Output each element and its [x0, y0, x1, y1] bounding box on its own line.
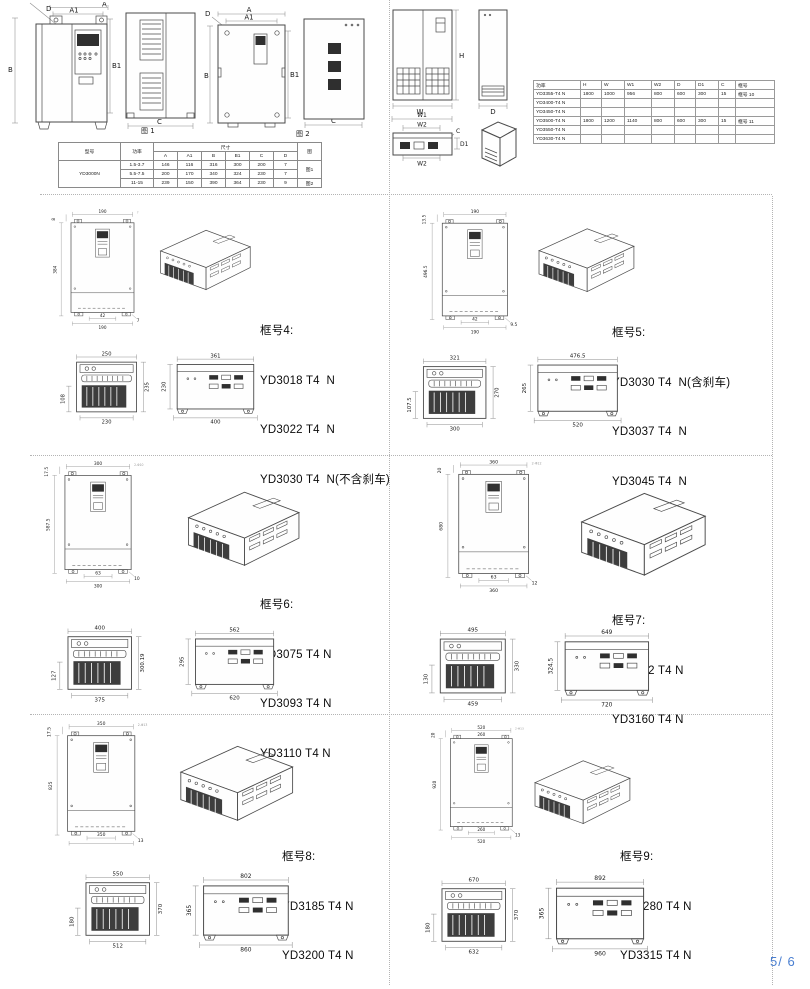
dim-label-a1: A1: [244, 14, 253, 22]
th: W1: [625, 81, 652, 90]
enclosure-body: [459, 470, 529, 577]
cabinet-iso-view: [482, 122, 516, 166]
dim-top: 476.5: [570, 354, 586, 360]
dim-right: 235: [145, 382, 151, 392]
cell: [719, 99, 736, 108]
frame6-bottom-view: 400 127 300.19 375: [46, 624, 148, 702]
frame5-bottom-view: 321 107.5 270 300: [402, 354, 502, 431]
cell: 239: [154, 179, 178, 188]
th: 功率: [534, 81, 581, 90]
rear-view-drawing: 476.5 265 520: [512, 352, 634, 428]
unit-body: [557, 888, 644, 944]
cell: 1200: [602, 117, 625, 126]
cell: [602, 126, 625, 135]
iso-box: [161, 230, 251, 289]
cell: [625, 135, 652, 144]
figure2-drawing: D A A1 B B1 C 图 2: [204, 2, 376, 138]
cell: [652, 108, 675, 117]
dim-width: 190: [99, 209, 107, 214]
cell: 11-15: [121, 179, 154, 188]
dim-bottom: 360: [489, 588, 498, 593]
th: D: [675, 81, 696, 90]
dim-hole: 7: [137, 318, 140, 323]
frame-title: 框号6:: [260, 597, 332, 614]
dim-height: 496.5: [423, 265, 429, 278]
th-model: 型号: [59, 143, 121, 161]
cell: [736, 108, 775, 117]
frame5-rear-view: 476.5 265 520: [512, 352, 634, 428]
iso-box: [181, 746, 293, 820]
dim-label-h: H: [459, 52, 464, 60]
manual-page: D A A1 B B1 C: [0, 0, 810, 989]
rear-view-drawing: 892 365 960: [528, 874, 662, 957]
frame8-iso-view: [170, 736, 300, 822]
cell: 1140: [625, 117, 652, 126]
frame9-section: 520 260 2-Φ13 20 920 260 520 13: [390, 716, 810, 989]
frame9-iso-view: [526, 752, 636, 825]
cell: 800: [652, 90, 675, 99]
dim-width: 360: [489, 460, 498, 466]
dim-label-c: C: [157, 118, 162, 126]
enclosure-body: [71, 219, 134, 316]
dim-left: 365: [538, 908, 545, 920]
cell: 170: [178, 170, 202, 179]
dim-left: 295: [180, 656, 186, 666]
cell: YD3355-T4 N: [534, 90, 581, 99]
cell: [625, 126, 652, 135]
th-c: C: [250, 152, 274, 161]
dim-top: 550: [113, 871, 124, 877]
cell: 600: [675, 117, 696, 126]
unit-body: [204, 886, 289, 940]
dim-note: 2-Φ10: [134, 463, 143, 467]
dim-bottom-inner: 42: [100, 313, 106, 318]
frame8-rear-view: 802 365 860: [176, 872, 306, 953]
frame8-section: 350 2-Φ13 17.5 825 350 13: [0, 716, 389, 989]
unit-body: [177, 364, 254, 413]
cell-fig2: 图2: [298, 179, 322, 188]
cell: [736, 126, 775, 135]
dim-note: 2-Φ13: [138, 723, 148, 727]
enclosure-body: [65, 472, 131, 574]
dim-bottom: 190: [99, 325, 107, 330]
dim-left: 107.5: [407, 397, 413, 412]
dim-label-w1: W1: [417, 112, 427, 119]
iso-box: [188, 492, 299, 565]
dim-width: 350: [97, 721, 106, 727]
cell: 150: [178, 179, 202, 188]
cell: 1800: [581, 117, 602, 126]
cell: [696, 126, 719, 135]
front-view-drawing: 300 2-Φ10 17.5 587.5 63 300 10: [28, 460, 146, 588]
dim-bottom: 520: [477, 839, 485, 844]
cell: [652, 126, 675, 135]
dim-height: 587.5: [45, 518, 51, 531]
isometric-view-drawing: [530, 220, 640, 293]
cell-fig1: 图1: [298, 161, 322, 179]
dim-ear: 20: [431, 732, 436, 738]
unit-body: [86, 883, 149, 936]
cell: [581, 108, 602, 117]
frame6-rear-view: 562 295 620: [170, 626, 290, 701]
frame5-section: 190 13.5 496.5 42 190 9.5: [390, 196, 810, 456]
frame9-rear-view: 892 365 960: [528, 874, 662, 957]
unit-body: [68, 637, 131, 690]
figure1-caption: 图 1: [141, 127, 155, 134]
dim-left: 265: [522, 382, 528, 393]
dim-ear: 13.5: [422, 215, 428, 225]
frame4-section: 190 7 8 384 42 190 7: [0, 196, 389, 456]
cell: [625, 108, 652, 117]
dim-label-c: C: [456, 128, 460, 135]
cell: 300: [226, 161, 250, 170]
dim-height: 920: [432, 780, 437, 788]
dim-hole: 13: [515, 832, 521, 837]
cell: [719, 135, 736, 144]
th: 框号: [736, 81, 775, 90]
cell: [602, 99, 625, 108]
dim-label-d: D: [490, 108, 495, 116]
dim-label-d1: D1: [460, 141, 469, 148]
dim-top: 802: [240, 874, 251, 880]
cell: 1000: [602, 90, 625, 99]
dim-ear: 17.5: [44, 467, 50, 477]
unit-body: [423, 367, 486, 419]
cell: 324: [226, 170, 250, 179]
page-number: 5/ 6: [770, 954, 796, 969]
dim-left: 230: [162, 381, 168, 392]
cabinet-side-view: [479, 10, 507, 100]
dim-top: 892: [594, 875, 606, 882]
isometric-view-drawing: [170, 736, 300, 822]
isometric-view-drawing: [526, 752, 636, 825]
rear-view-drawing: 361 230 400: [152, 352, 270, 425]
dim-bottom: 620: [229, 695, 240, 701]
dim-right: 270: [494, 387, 500, 398]
dim-left: 108: [61, 394, 67, 404]
frame5-iso-view: [530, 220, 640, 293]
dim-note: 7: [137, 211, 139, 215]
dim-height: 680: [438, 522, 444, 531]
rear-view-drawing: 649 324.5 720: [538, 628, 666, 708]
dim-bottom-inner: 63: [491, 575, 497, 581]
isometric-view-drawing: [152, 222, 256, 291]
frame4-bottom-view: 250 108 235 230: [56, 350, 152, 424]
cell: 300: [696, 117, 719, 126]
frame7-bottom-view: 495 130 330 459: [418, 626, 522, 706]
enclosure-body: [450, 735, 512, 830]
frame7-front-view: 360 2-Φ12 20 680 63 360 12: [420, 458, 544, 593]
cell: [581, 99, 602, 108]
enclosure-body: [442, 220, 507, 320]
cell: 956: [625, 90, 652, 99]
dim-top: 495: [467, 628, 478, 634]
cell: YD3400-T4 N: [534, 99, 581, 108]
cell: [675, 135, 696, 144]
front-view-drawing: 190 13.5 496.5 42 190 9.5: [406, 208, 522, 334]
cabinet-front-view: [393, 10, 452, 100]
iso-box: [582, 493, 706, 575]
frame-model: YD3022 T4 N: [260, 422, 390, 439]
unit-body: [442, 889, 505, 942]
dim-bottom: 375: [95, 698, 105, 702]
divider-horizontal-1: [40, 194, 772, 195]
dim-bottom: 230: [102, 419, 112, 424]
dim-right: 330: [514, 660, 520, 671]
frame7-iso-view: [570, 482, 713, 577]
model-size-table: 型号 功率 尺寸 图 A A1 B B1 C D YD3000N 1.5-3.7…: [58, 142, 322, 188]
cell: 5.5-7.5: [121, 170, 154, 179]
th: W: [602, 81, 625, 90]
dim-bottom: 520: [572, 423, 583, 428]
frame-title: 框号8:: [282, 849, 354, 866]
cell: 230: [250, 179, 274, 188]
dim-hole: 10: [134, 576, 140, 582]
th-size: 尺寸: [154, 143, 298, 152]
side-view: [126, 13, 195, 118]
cell: YD3550-T4 N: [534, 126, 581, 135]
isometric-view-drawing: [178, 482, 306, 567]
cell: [675, 108, 696, 117]
dim-ear: 20: [437, 467, 443, 473]
bottom-view-drawing: 400 127 300.19 375: [46, 624, 148, 702]
cell: 7: [274, 161, 298, 170]
th-a1: A1: [178, 152, 202, 161]
cell: [602, 135, 625, 144]
cell: 框号 10: [736, 90, 775, 99]
power-cabinet-table: 功率 H W W1 W2 D D1 C 框号 YD3355-T4 N180010…: [533, 80, 775, 144]
frame8-front-view: 350 2-Φ13 17.5 825 350 13: [30, 720, 150, 850]
cell: 316: [202, 161, 226, 170]
dim-left: 180: [69, 916, 75, 927]
frame8-bottom-view: 550 180 370 512: [64, 870, 166, 948]
dim-top: 250: [102, 351, 112, 357]
dim-bottom: 300: [450, 426, 461, 431]
cell: [696, 108, 719, 117]
rear-view-drawing: 562 295 620: [170, 626, 290, 701]
th-fig: 图: [298, 143, 322, 161]
rear-view-drawing: 802 365 860: [176, 872, 306, 953]
cell: 146: [154, 161, 178, 170]
figure1-drawing: D A A1 B B1 C: [8, 2, 200, 134]
cell: 390: [202, 179, 226, 188]
dim-hole: 12: [532, 580, 538, 586]
cell-model: YD3000N: [59, 161, 121, 188]
front-view: [36, 16, 107, 129]
th-b: B: [202, 152, 226, 161]
dim-note: 2-Φ13: [515, 727, 524, 731]
dim-width: 520: [477, 725, 485, 730]
cell: [652, 99, 675, 108]
dim-bottom-inner: 42: [472, 317, 478, 323]
dim-bottom-inner: 260: [477, 827, 485, 832]
unit-body: [195, 639, 273, 689]
side-view: [304, 19, 364, 119]
cell: 230: [250, 170, 274, 179]
th-a: A: [154, 152, 178, 161]
frame4-front-view: 190 7 8 384 42 190 7: [36, 208, 148, 330]
dim-bottom: 190: [471, 329, 480, 334]
dim-bottom-inner: 63: [95, 570, 101, 576]
dim-right: 370: [514, 909, 520, 920]
cabinet-drawing: H W D W1 W2 C D1 W2: [386, 2, 530, 190]
dim-left: 324.5: [549, 657, 555, 674]
frame9-bottom-view: 670 180 370 632: [420, 876, 522, 954]
frame7-rear-view: 649 324.5 720: [538, 628, 666, 708]
th: D1: [696, 81, 719, 90]
cell: 200: [154, 170, 178, 179]
dim-bottom: 400: [210, 420, 221, 425]
cell: [602, 108, 625, 117]
dim-width: 300: [94, 461, 103, 467]
figure2-caption: 图 2: [296, 130, 310, 138]
dim-width: 190: [471, 209, 480, 215]
unit-body: [538, 365, 617, 416]
cell: YD3450-T4 N: [534, 108, 581, 117]
frame-title: 框号5:: [612, 325, 730, 342]
cell: 600: [675, 90, 696, 99]
dim-bottom: 459: [467, 701, 478, 706]
dim-label-b1: B1: [290, 71, 299, 79]
dim-ear: 8: [51, 218, 56, 221]
cell: [652, 135, 675, 144]
bottom-view-drawing: 250 108 235 230: [56, 350, 152, 424]
cell: 15: [719, 117, 736, 126]
dim-right: 300.19: [140, 653, 146, 673]
enclosure-body: [68, 732, 135, 835]
th-b1: B1: [226, 152, 250, 161]
frame4-iso-view: [152, 222, 256, 291]
cell: YD3630-T4 N: [534, 135, 581, 144]
front-view: [218, 25, 285, 127]
cell: [581, 135, 602, 144]
cell: 15: [719, 90, 736, 99]
cell: 300: [696, 90, 719, 99]
dim-label-w2-bottom: W2: [417, 161, 427, 168]
dim-height: 384: [52, 265, 57, 273]
dim-top: 400: [95, 625, 106, 631]
bottom-view-drawing: 550 180 370 512: [64, 870, 166, 948]
dim-bottom: 960: [594, 950, 606, 957]
unit-body: [77, 362, 137, 412]
cell: [719, 108, 736, 117]
frame-model: YD3018 T4 N: [260, 373, 390, 390]
dim-hole: 9.5: [510, 322, 517, 328]
unit-body: [565, 642, 648, 695]
dim-bottom: 720: [601, 702, 612, 708]
iso-box: [535, 761, 630, 824]
dim-hole: 13: [138, 838, 144, 844]
cell: 116: [178, 161, 202, 170]
cell: YD3500-T4 N: [534, 117, 581, 126]
dim-label-d: D: [205, 10, 210, 18]
cell: [625, 99, 652, 108]
dim-width-inner: 260: [477, 732, 485, 737]
th-power: 功率: [121, 143, 154, 161]
cell: [675, 126, 696, 135]
bottom-view-drawing: 495 130 330 459: [418, 626, 522, 706]
cell: [736, 135, 775, 144]
dim-label-b: B: [204, 72, 209, 80]
cell: 340: [202, 170, 226, 179]
cell: [719, 126, 736, 135]
dim-left: 180: [425, 922, 431, 933]
dim-label-b1: B1: [112, 62, 121, 70]
dim-bottom: 632: [469, 950, 479, 954]
frame7-section: 360 2-Φ12 20 680 63 360 12: [390, 456, 810, 716]
dim-label-a1: A1: [69, 7, 78, 15]
th-d: D: [274, 152, 298, 161]
cell: 7: [274, 170, 298, 179]
front-view-drawing: 360 2-Φ12 20 680 63 360 12: [420, 458, 544, 593]
cell: [696, 135, 719, 144]
cell: [581, 126, 602, 135]
dim-bottom-inner: 350: [97, 832, 106, 838]
frame5-front-view: 190 13.5 496.5 42 190 9.5: [406, 208, 522, 334]
dim-left: 127: [51, 671, 57, 681]
dim-top: 670: [469, 877, 480, 883]
frame6-section: 300 2-Φ10 17.5 587.5 63 300 10: [0, 456, 389, 716]
cell: 1800: [581, 90, 602, 99]
frame-title: 框号9:: [620, 849, 692, 866]
dim-ear: 17.5: [46, 727, 52, 737]
dim-right: 370: [158, 903, 164, 914]
dim-bottom: 512: [113, 944, 123, 948]
cell: 364: [226, 179, 250, 188]
frame9-front-view: 520 260 2-Φ13 20 920 260 520 13: [416, 724, 526, 844]
dim-label-b: B: [8, 66, 13, 74]
frame4-rear-view: 361 230 400: [152, 352, 270, 425]
front-view-drawing: 190 7 8 384 42 190 7: [36, 208, 148, 330]
dim-left: 365: [187, 905, 193, 916]
frame6-iso-view: [178, 482, 306, 567]
cell: 200: [250, 161, 274, 170]
dim-bottom: 300: [94, 583, 103, 588]
front-view-drawing: 350 2-Φ13 17.5 825 350 13: [30, 720, 150, 850]
th: C: [719, 81, 736, 90]
dim-label-d: D: [46, 5, 51, 13]
dim-label-a: A: [102, 2, 107, 9]
dim-top: 361: [210, 353, 220, 359]
bottom-view-drawing: 321 107.5 270 300: [402, 354, 502, 431]
iso-box: [539, 229, 634, 292]
th: W2: [652, 81, 675, 90]
dim-top: 321: [450, 355, 460, 361]
frame-title: 框号4:: [260, 323, 390, 340]
front-view-drawing: 520 260 2-Φ13 20 920 260 520 13: [416, 724, 526, 844]
unit-body: [440, 639, 505, 693]
cell: [675, 99, 696, 108]
dim-top: 562: [229, 628, 239, 634]
dim-top: 649: [601, 630, 612, 636]
dim-bottom: 860: [240, 947, 251, 953]
dim-left: 130: [423, 673, 429, 684]
cabinet-top-view: [393, 133, 452, 155]
cell: 框号 11: [736, 117, 775, 126]
dim-label-w2: W2: [417, 122, 427, 129]
frame6-front-view: 300 2-Φ10 17.5 587.5 63 300 10: [28, 460, 146, 588]
cell: [736, 99, 775, 108]
cell: 1.5-3.7: [121, 161, 154, 170]
th: H: [581, 81, 602, 90]
bottom-view-drawing: 670 180 370 632: [420, 876, 522, 954]
dim-height: 825: [48, 781, 54, 790]
cell: 9: [274, 179, 298, 188]
cell: [696, 99, 719, 108]
isometric-view-drawing: [570, 482, 713, 577]
cell: 800: [652, 117, 675, 126]
dim-note: 2-Φ12: [532, 461, 542, 465]
